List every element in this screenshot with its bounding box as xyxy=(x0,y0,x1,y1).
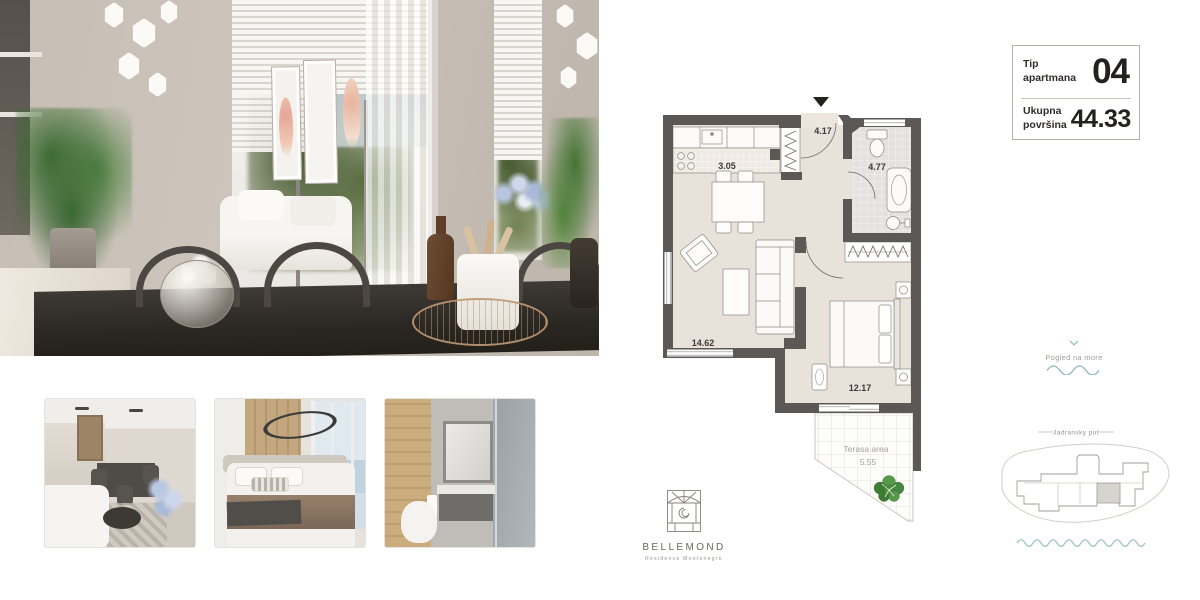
terrace-label: Terasa area xyxy=(844,444,889,454)
art-frame xyxy=(303,59,338,184)
site-plan: Jadransky put xyxy=(990,418,1200,564)
apartment-info-box: Tip apartmana 04 Ukupna površina 44.33 xyxy=(1012,45,1140,140)
room-label-bedroom: 12.17 xyxy=(849,383,872,393)
pendant-light-icon xyxy=(118,52,140,80)
dark-vase xyxy=(570,238,598,308)
art-print xyxy=(279,97,294,157)
sea-view-label: Pogled na more xyxy=(1028,353,1120,362)
total-area-value: 44.33 xyxy=(1071,105,1131,134)
wave-icon xyxy=(1045,362,1103,375)
apartment-type-value: 04 xyxy=(1081,52,1129,92)
wardrobe xyxy=(845,242,911,262)
wire-tray xyxy=(412,298,548,346)
pendant-light-icon xyxy=(556,4,574,28)
thumbnail-bathroom xyxy=(384,398,536,548)
pillow xyxy=(251,477,289,492)
main-photo xyxy=(0,0,599,356)
sea-wave-icon xyxy=(1017,540,1145,547)
room-label-living: 14.62 xyxy=(692,338,715,348)
side-window xyxy=(494,0,542,260)
thumbnail-living-kitchen xyxy=(44,398,196,548)
apartment-type-row: Tip apartmana 04 xyxy=(1013,46,1139,98)
road-label: Jadransky put xyxy=(1053,430,1099,437)
ceiling-light xyxy=(75,407,89,410)
total-area-label: Ukupna površina xyxy=(1023,105,1067,132)
shower-glass xyxy=(495,399,536,547)
pendant-light-icon xyxy=(160,0,178,24)
chair xyxy=(117,485,133,505)
room-label-hall: 4.17 xyxy=(814,126,832,136)
thumbnail-bedroom xyxy=(214,398,366,548)
highlighted-unit xyxy=(1097,483,1120,503)
hall-closet xyxy=(781,127,800,173)
pendant-light-icon xyxy=(560,66,577,89)
room-label-bathroom: 4.77 xyxy=(868,162,886,172)
coffee-table xyxy=(103,507,141,529)
dresser xyxy=(812,364,827,390)
wall-art xyxy=(271,59,339,184)
entrance-arrow-icon xyxy=(813,97,829,107)
shelf-board xyxy=(0,52,42,57)
sofa xyxy=(44,485,109,548)
room-label-kitchen: 3.05 xyxy=(718,161,736,171)
window-blinds xyxy=(494,0,542,160)
apartment-type-label: Tip apartmana xyxy=(1023,58,1077,85)
coffee-table xyxy=(723,269,749,315)
chevron-down-icon xyxy=(1068,340,1080,347)
wall-panel xyxy=(77,415,103,461)
bottle xyxy=(427,234,454,300)
sofa-cushions xyxy=(238,190,284,220)
brochure-page: 4.17 3.05 4.77 14.62 12.17 Terasa area 5… xyxy=(0,0,1200,600)
pendant-light-icon xyxy=(132,18,156,48)
sofa xyxy=(756,240,794,334)
sea-view-indicator: Pogled na more xyxy=(1028,334,1120,380)
bathtub xyxy=(887,168,911,212)
art-frame xyxy=(271,66,302,180)
bed xyxy=(830,299,900,369)
pendant-light-icon xyxy=(148,72,167,97)
mirror xyxy=(443,421,493,483)
brand-tagline: Residence Montenegro xyxy=(624,556,744,562)
vanity-counter xyxy=(437,485,495,494)
terrace xyxy=(815,413,913,521)
ceiling-light xyxy=(129,409,143,412)
brand-name: BELLEMOND xyxy=(624,542,744,553)
floor-plan: 4.17 3.05 4.77 14.62 12.17 Terasa area 5… xyxy=(648,90,934,528)
flower-bouquet xyxy=(143,471,189,523)
brand-logo: BELLEMOND Residence Montenegro xyxy=(624,489,744,562)
pendant-light-icon xyxy=(104,2,124,28)
toilet xyxy=(401,501,437,543)
throw-blanket xyxy=(227,500,302,527)
terrace-area: 5.55 xyxy=(860,457,877,467)
brand-emblem-icon xyxy=(666,489,702,533)
glass-bowl xyxy=(160,260,234,328)
total-area-row: Ukupna površina 44.33 xyxy=(1013,99,1139,139)
pendant-light-icon xyxy=(576,32,598,60)
vanity-cabinet xyxy=(439,494,493,521)
